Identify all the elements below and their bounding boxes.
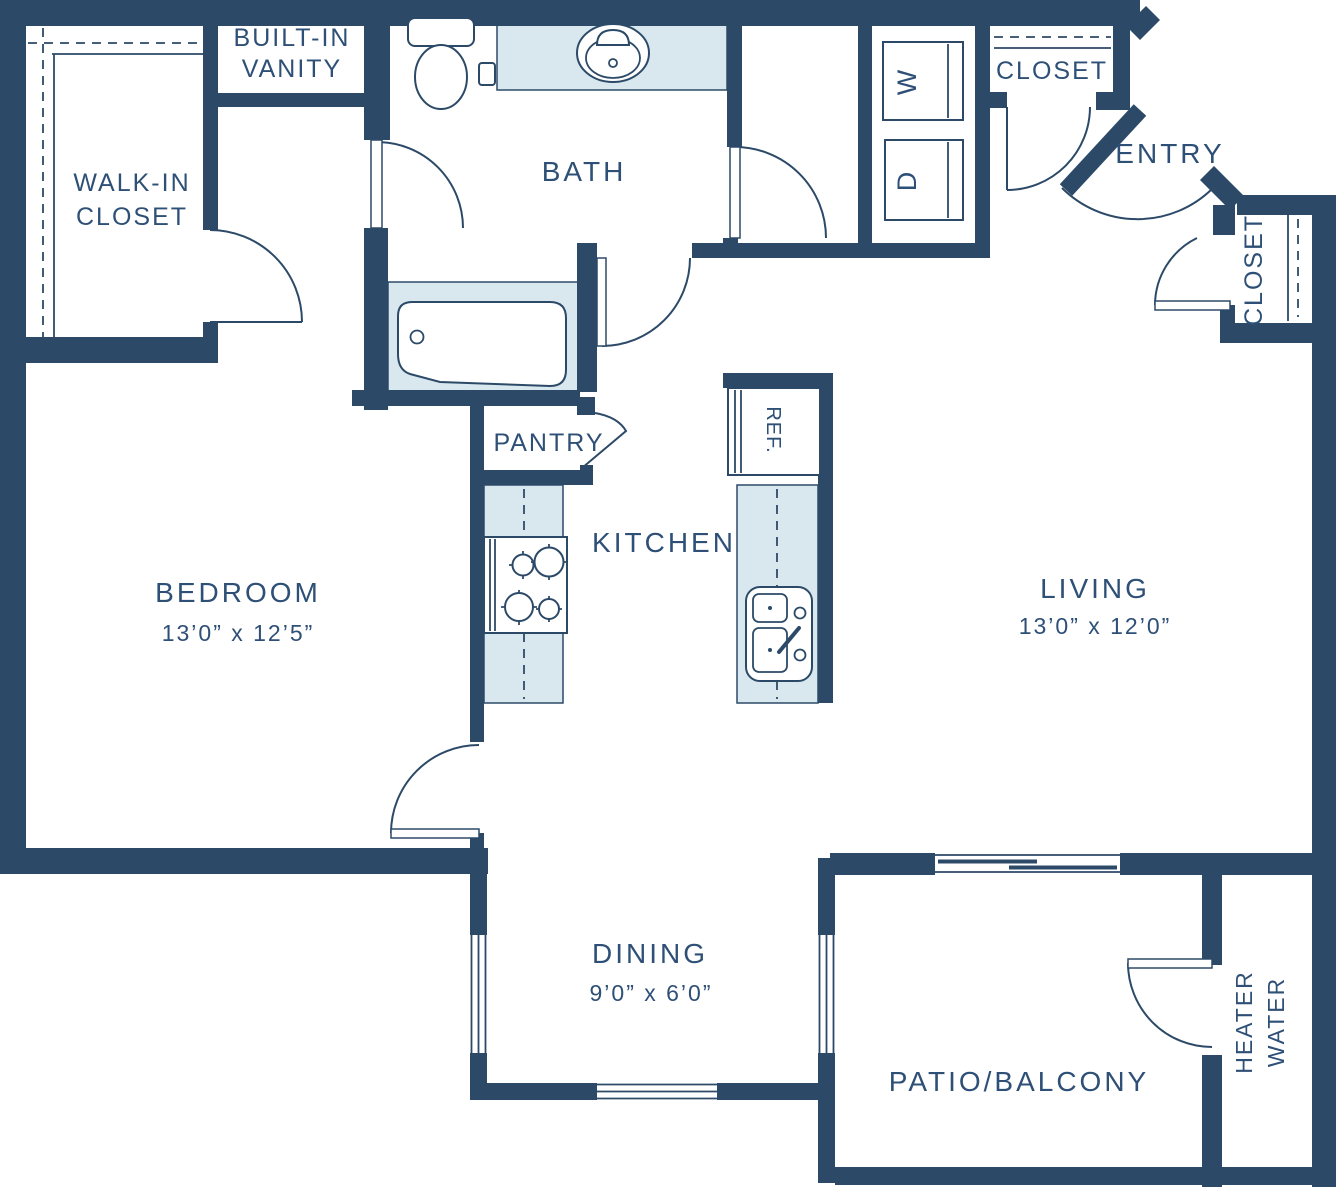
- wall: [818, 1053, 835, 1183]
- hall-closet-label: CLOSET: [996, 57, 1108, 85]
- bath-sink-icon: [577, 24, 649, 82]
- refrigerator-label: REF.: [762, 406, 784, 453]
- door-swing-arc: [377, 142, 463, 228]
- wall: [1096, 92, 1130, 110]
- wall: [1120, 853, 1312, 875]
- kitchen-label: KITCHEN: [592, 527, 736, 558]
- water-heater-label-line2: HEATER: [1231, 970, 1257, 1074]
- wall: [1202, 875, 1222, 965]
- door-leaf: [1128, 959, 1212, 968]
- stove-icon: [484, 537, 567, 633]
- wall: [818, 858, 835, 935]
- door-leaf: [371, 140, 382, 228]
- dining-label: DINING: [592, 938, 708, 969]
- walk-in-closet-label-line1: WALK-IN: [73, 169, 190, 197]
- built-in-vanity-label-line2: VANITY: [242, 55, 342, 83]
- labels: WALK-IN CLOSET BUILT-IN VANITY BATH W D …: [73, 24, 1289, 1097]
- wall: [577, 243, 597, 392]
- wall: [203, 322, 218, 363]
- door-swing-arc: [1128, 963, 1212, 1047]
- window: [597, 1083, 717, 1100]
- wall: [835, 1167, 1312, 1185]
- entry-label: ENTRY: [1115, 138, 1224, 169]
- door-swing-arc: [1062, 188, 1212, 219]
- wall: [352, 390, 580, 406]
- wall: [470, 1083, 597, 1100]
- wall: [723, 238, 738, 244]
- wall: [470, 404, 484, 742]
- kitchen-sink-icon: [746, 587, 812, 681]
- built-in-vanity-label-line1: BUILT-IN: [234, 24, 351, 52]
- living-dimensions: 13’0” x 12’0”: [1019, 613, 1172, 639]
- wall: [218, 93, 380, 107]
- wall: [0, 0, 1140, 26]
- floor-plan-drawing: WALK-IN CLOSET BUILT-IN VANITY BATH W D …: [0, 0, 1336, 1187]
- wall: [692, 243, 990, 258]
- bedroom-dimensions: 13’0” x 12’5”: [162, 620, 315, 646]
- sliding-glass-door: [935, 853, 1120, 875]
- bathtub-icon: [398, 302, 566, 386]
- bath-label: BATH: [542, 156, 627, 187]
- wall: [0, 337, 218, 363]
- wall: [1202, 1055, 1222, 1187]
- walk-in-closet-label-line2: CLOSET: [76, 203, 188, 231]
- wall: [203, 13, 218, 230]
- window: [470, 935, 487, 1053]
- bedroom-label: BEDROOM: [155, 577, 321, 608]
- wall: [1213, 205, 1235, 235]
- door-swing-arc: [602, 258, 690, 346]
- door-leaf: [597, 258, 606, 346]
- wall: [975, 26, 990, 246]
- wall: [364, 228, 388, 410]
- patio-label: PATIO/BALCONY: [889, 1066, 1149, 1097]
- water-heater-label-line1: WATER: [1263, 977, 1289, 1068]
- toilet-icon: [408, 18, 495, 109]
- wall: [470, 470, 593, 485]
- wall: [577, 397, 595, 415]
- window: [818, 935, 835, 1053]
- wall: [990, 92, 1007, 108]
- pantry-label: PANTRY: [493, 429, 604, 457]
- door-leaf: [391, 829, 479, 838]
- floor-plan: WALK-IN CLOSET BUILT-IN VANITY BATH W D …: [0, 0, 1336, 1187]
- door-leaf: [730, 147, 740, 238]
- dining-dimensions: 9’0” x 6’0”: [590, 980, 713, 1006]
- wall: [1312, 195, 1336, 1187]
- living-label: LIVING: [1040, 573, 1150, 604]
- door-leaf: [1155, 301, 1230, 310]
- door-swing-arc: [391, 745, 479, 833]
- door-swing-arc: [1155, 238, 1197, 305]
- wall: [470, 874, 487, 935]
- windows: [470, 853, 1120, 1100]
- dryer-label: D: [892, 171, 922, 192]
- wall: [0, 0, 26, 874]
- wall: [717, 1083, 818, 1100]
- door-swing-arc: [210, 230, 302, 322]
- wall: [830, 853, 935, 875]
- washer-label: W: [892, 69, 922, 95]
- wall: [470, 833, 484, 874]
- door-swing-arc: [735, 147, 826, 238]
- wall: [470, 1053, 487, 1083]
- entry-closet-label: CLOSET: [1240, 214, 1268, 326]
- wall: [0, 848, 488, 874]
- wall: [723, 373, 833, 388]
- wall: [727, 13, 742, 147]
- wall: [364, 0, 390, 140]
- wall: [858, 26, 872, 246]
